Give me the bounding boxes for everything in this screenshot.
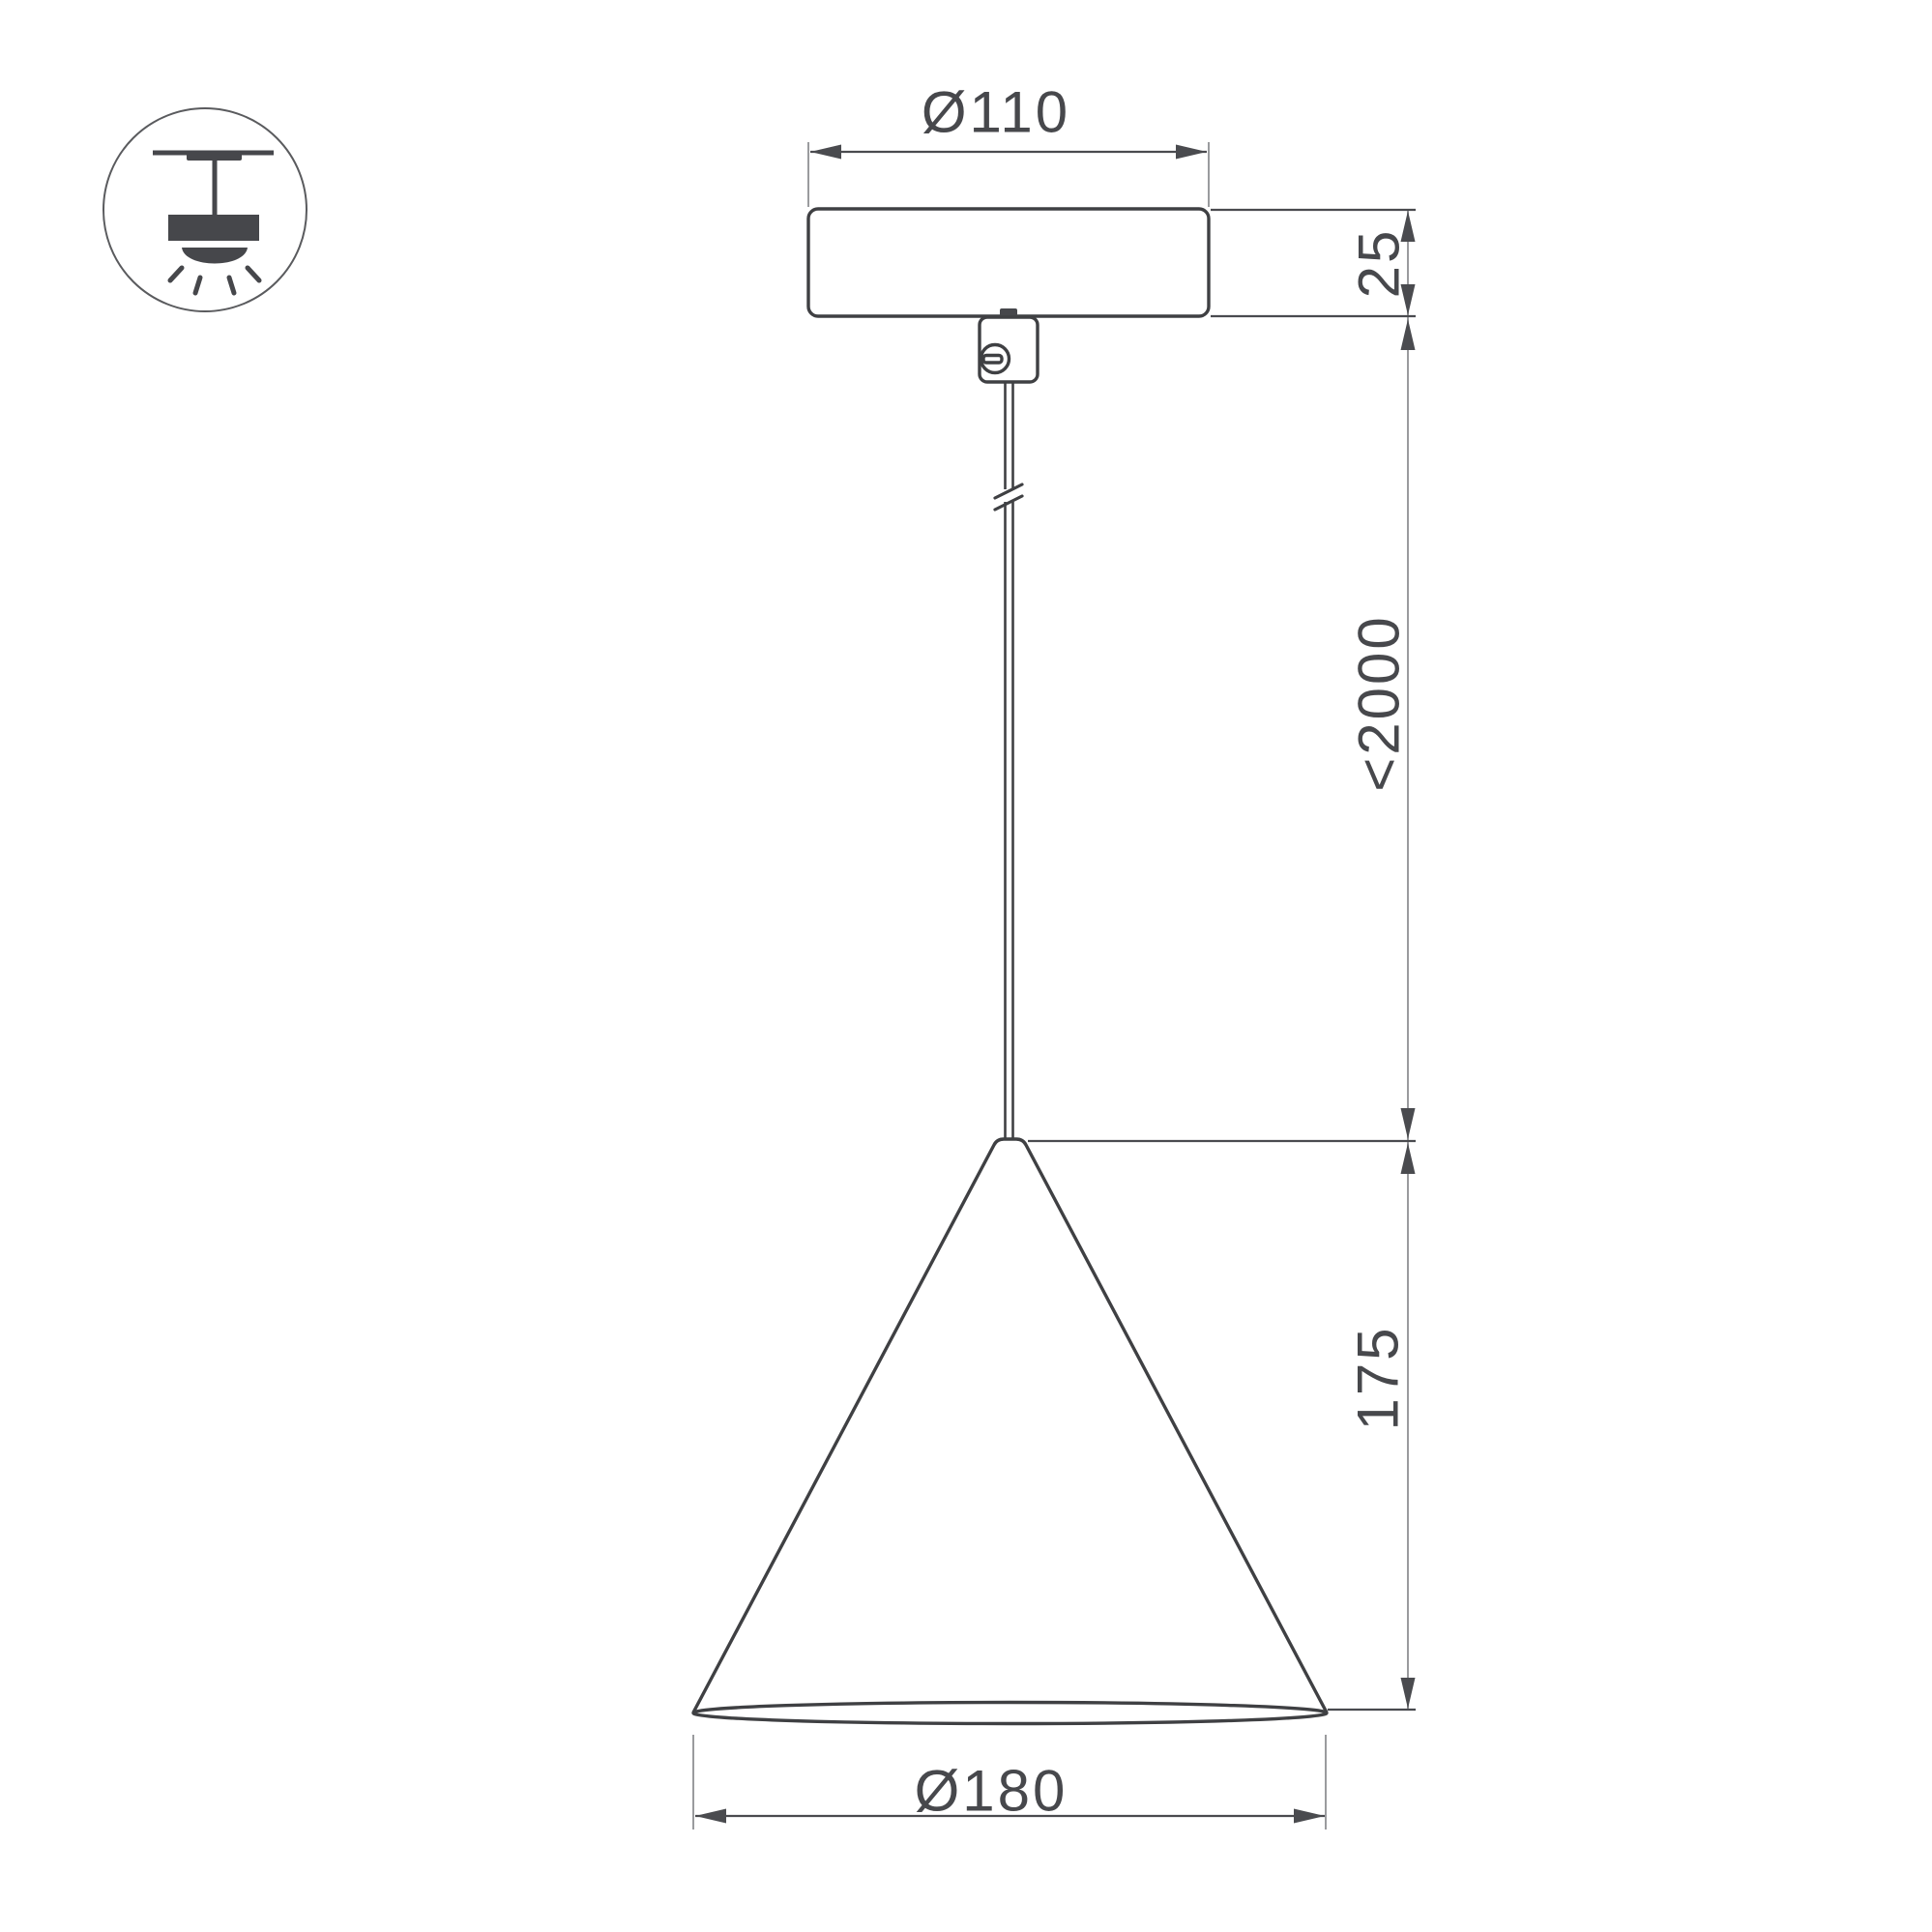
suspension-cable — [995, 382, 1022, 1138]
arrow-down — [1401, 1108, 1416, 1139]
dim-label-suspension-length: <2000 — [1346, 614, 1413, 792]
arrow-right — [1176, 145, 1207, 160]
icon-circle-border — [103, 108, 307, 311]
cable-break-symbol — [995, 484, 1022, 510]
dim-label-shade-diameter: Ø180 — [915, 1758, 1068, 1825]
cone-shade-body — [693, 1139, 1327, 1712]
technical-drawing-canvas: Ø110 25 <2000 175 Ø180 — [0, 0, 1932, 1932]
icon-light-rays — [170, 268, 259, 293]
cable-gripper — [980, 317, 1038, 382]
ceiling-canopy — [808, 209, 1209, 316]
drawing-linework — [0, 0, 1932, 1932]
arrow-down — [1401, 1678, 1416, 1709]
arrow-left — [695, 1809, 726, 1824]
cone-shade-rim — [693, 1703, 1327, 1724]
dim-label-canopy-height: 25 — [1346, 228, 1413, 299]
icon-lamp-body — [168, 215, 259, 241]
dim-label-shade-height: 175 — [1345, 1325, 1412, 1430]
arrow-left — [810, 145, 841, 160]
arrow-up — [1401, 1143, 1416, 1174]
arrow-up — [1401, 319, 1416, 350]
dim-label-canopy-diameter: Ø110 — [922, 79, 1070, 146]
icon-light-dome — [182, 248, 248, 264]
arrow-right — [1294, 1809, 1325, 1824]
pendant-ceiling-light-icon — [103, 108, 307, 311]
cone-shade — [693, 1139, 1327, 1724]
